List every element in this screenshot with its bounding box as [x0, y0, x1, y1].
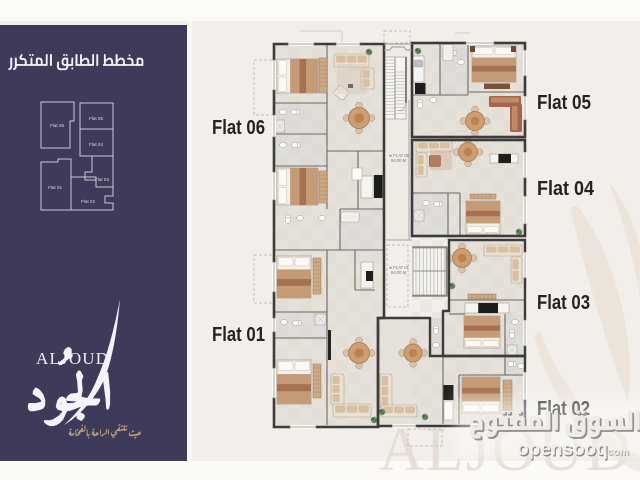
svg-text:opensooq: opensooq	[517, 439, 608, 460]
svg-text:Flat 01: Flat 01	[48, 185, 62, 190]
svg-text:84.00 M: 84.00 M	[391, 270, 407, 275]
svg-text:.com: .com	[605, 446, 630, 458]
svg-text:Flat 06: Flat 06	[212, 116, 265, 139]
svg-text:Flat 03: Flat 03	[537, 291, 590, 314]
svg-text:Flat 05: Flat 05	[89, 116, 103, 121]
svg-text:ALJOUD: ALJOUD	[36, 349, 108, 368]
svg-text:Flat 02: Flat 02	[81, 199, 95, 204]
svg-text:Flat 04: Flat 04	[537, 177, 595, 200]
svg-text:Flat 05: Flat 05	[537, 91, 591, 114]
svg-text:Flat 03: Flat 03	[95, 177, 109, 182]
svg-text:Flat 04: Flat 04	[89, 142, 103, 147]
svg-text:84.00 M: 84.00 M	[391, 158, 407, 163]
svg-text:Flat 06: Flat 06	[50, 123, 64, 128]
svg-text:Flat 01: Flat 01	[212, 323, 265, 346]
